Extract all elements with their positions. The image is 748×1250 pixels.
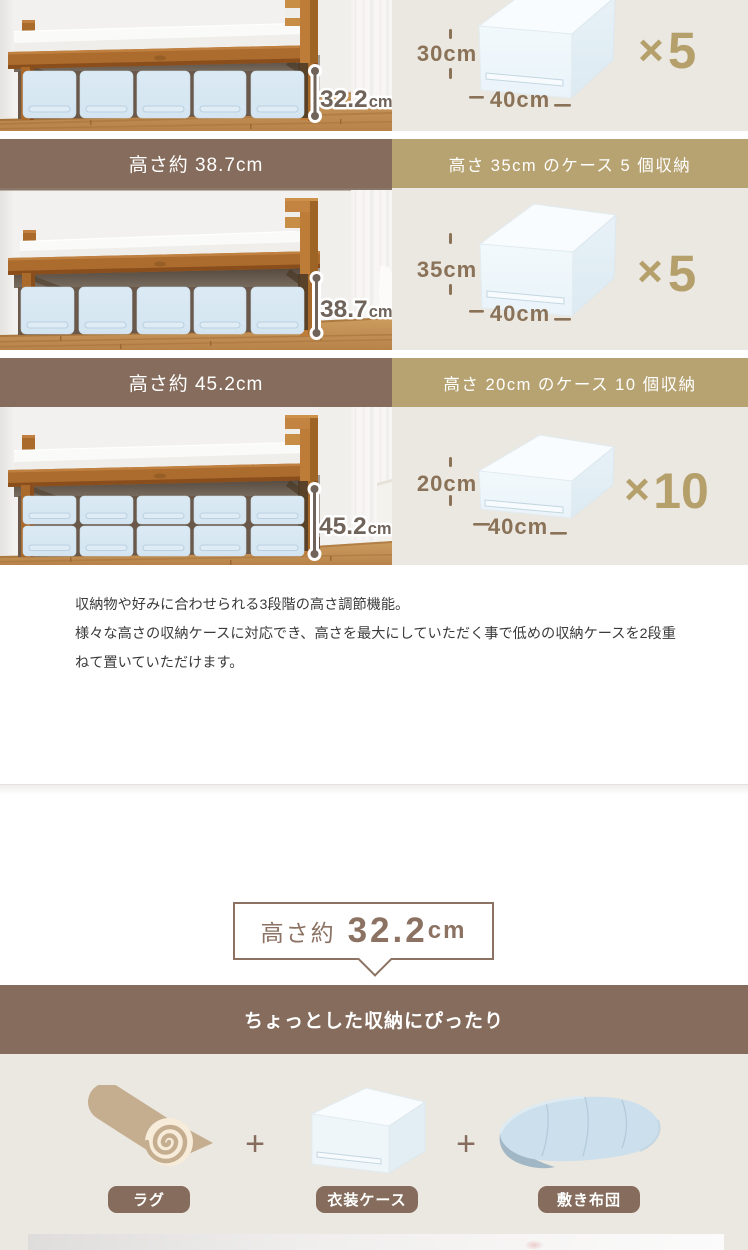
svg-text:×: × bbox=[624, 465, 650, 514]
svg-text:40cm: 40cm bbox=[490, 301, 550, 326]
svg-text:40cm: 40cm bbox=[488, 514, 548, 539]
svg-text:×: × bbox=[638, 26, 664, 75]
svg-text:5: 5 bbox=[668, 245, 696, 302]
svg-text:40cm: 40cm bbox=[490, 87, 550, 112]
svg-text:30cm: 30cm bbox=[417, 41, 477, 66]
svg-text:35cm: 35cm bbox=[417, 257, 477, 282]
svg-text:×: × bbox=[637, 247, 663, 296]
svg-text:10: 10 bbox=[653, 463, 709, 519]
svg-text:20cm: 20cm bbox=[417, 471, 477, 496]
svg-text:5: 5 bbox=[668, 22, 696, 79]
